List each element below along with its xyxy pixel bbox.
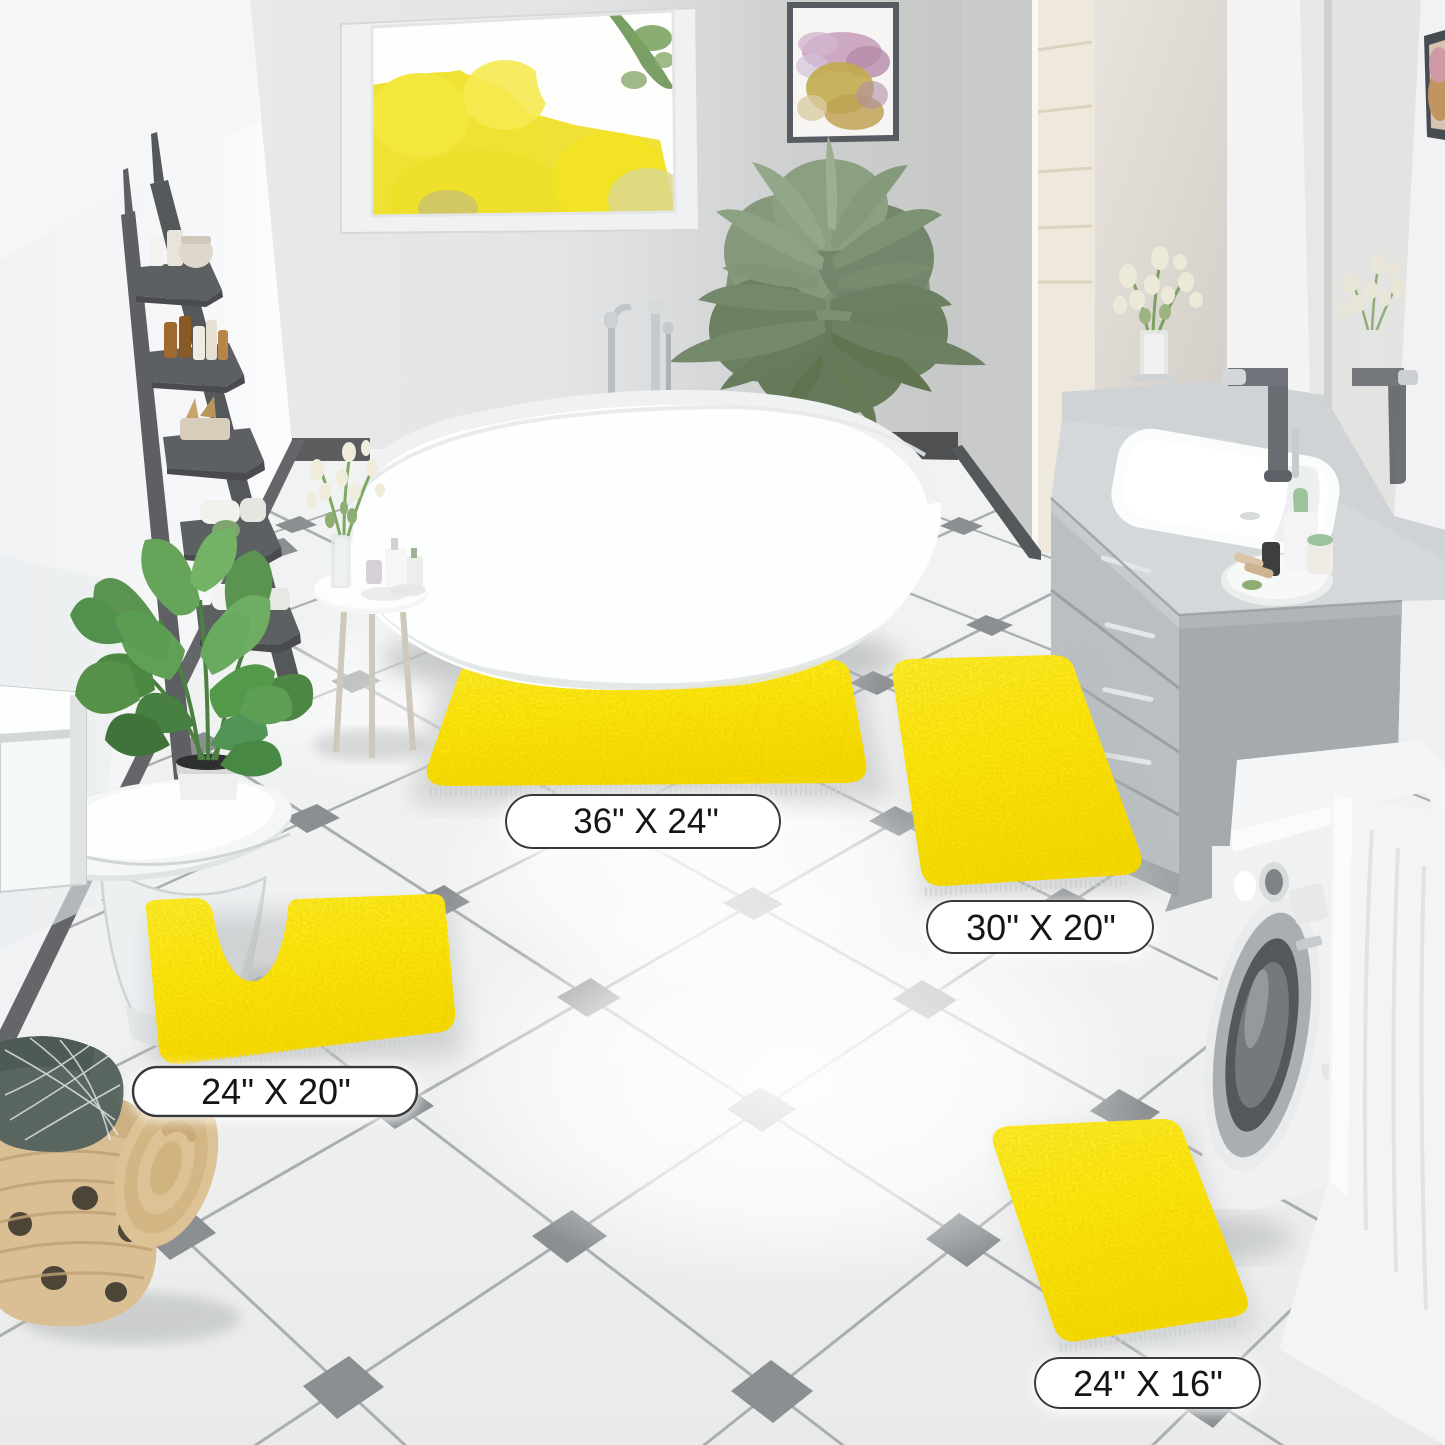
svg-text:30" X 20": 30" X 20" <box>966 907 1116 948</box>
svg-text:24" X 16": 24" X 16" <box>1073 1363 1223 1404</box>
svg-text:24" X 20": 24" X 20" <box>201 1071 351 1112</box>
svg-text:36" X 24": 36" X 24" <box>573 802 719 841</box>
